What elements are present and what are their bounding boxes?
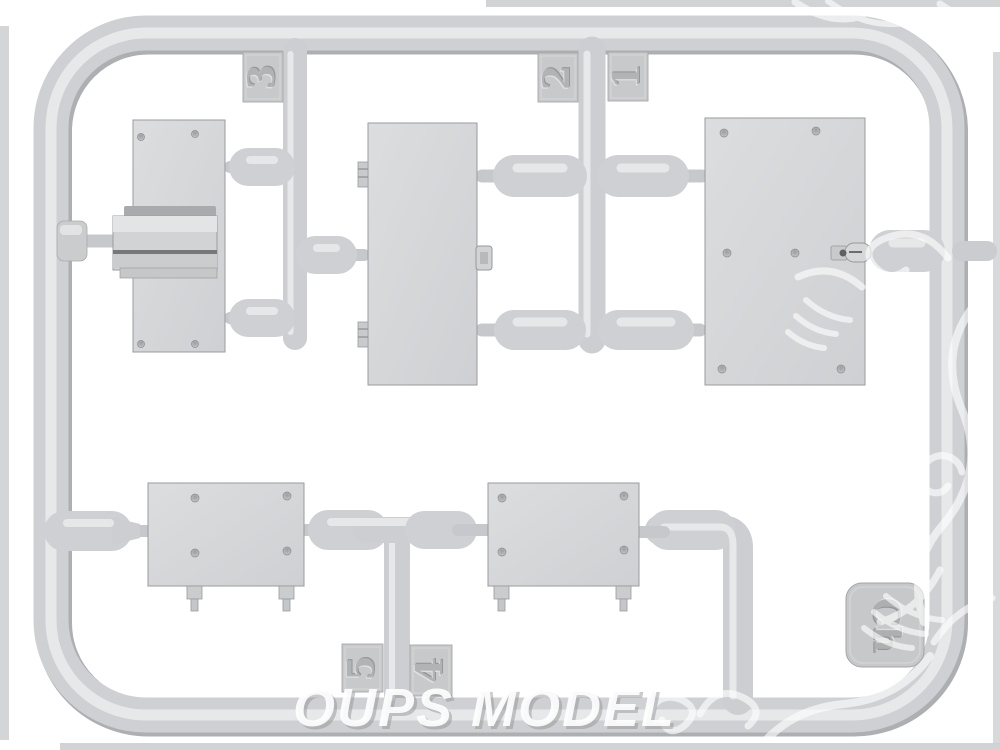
bottom-left-pin [279,586,294,599]
bottom-left-hole [191,494,199,502]
panel-handle-pin [840,250,847,257]
bottom-right-hole [620,492,628,500]
door-latch-notch [480,252,488,264]
part-left-panel [113,120,225,352]
part-bottom-right-box [488,483,639,611]
bottom-left-pin-tip [283,599,290,611]
bracket-lower-band [113,254,217,268]
right-panel-rivet [718,365,726,373]
part-tag-1: 1 1 1 [605,52,649,101]
photo-edge-left [0,26,9,740]
sprue-illustration: 3 3 3 2 2 2 1 1 1 [0,0,1000,750]
tag-number-1: 1 [606,64,648,89]
part-tag-3: 3 3 3 [240,52,284,102]
right-panel-rivet [791,249,799,257]
photo-edge-right [993,52,1000,744]
right-panel-rivet [812,127,820,135]
bottom-right-pin-tip [620,599,627,611]
part-right-panel [705,118,871,385]
tag-number-3: 3 [241,64,283,89]
bottom-left-pin [187,586,202,599]
watermark-text: OUPS MODEL OUPS MODEL [293,678,679,741]
bottom-left-pin-tip [191,599,198,611]
sprue-photo: 3 3 3 2 2 2 1 1 1 [0,0,1000,750]
photo-edge-top [486,0,1000,7]
watermark-text-main: OUPS MODEL [293,678,676,738]
runner-elbow-highlight [664,527,733,696]
bottom-left-hole [283,492,291,500]
arm-bottom-left-cone [112,517,140,545]
bracket-top-band [113,216,217,232]
tag-number-2: 2 [536,65,578,90]
door-hinge-bottom [358,322,368,347]
part-center-door [358,123,492,385]
bottom-right-pin [616,586,631,599]
center-door-plate [368,123,477,385]
bottom-left-hole [283,547,291,555]
bottom-right-plate [488,483,639,586]
bottom-right-pin-tip [498,599,505,611]
door-hinge-top [358,162,368,187]
right-panel-rivet [723,249,731,257]
photo-edge-bottom [60,743,1000,750]
left-rail-bulge-highlight [60,225,82,235]
left-panel-rivet [192,131,199,138]
part-tag-2: 2 2 2 [535,53,579,102]
bottom-right-hole [620,546,628,554]
bottom-right-hole [498,494,506,502]
bracket-ledge [120,268,217,278]
left-panel-rivet [138,134,145,141]
bottom-right-pin [494,586,509,599]
left-panel-rivet [138,341,145,348]
runner-elbow [660,530,738,700]
bracket-groove [113,250,217,254]
tag-number-5: 5 [341,655,383,680]
right-panel-rivet [837,365,845,373]
part-bottom-left-box [148,483,304,611]
right-panel-rivet [720,129,728,137]
left-panel-rivet [192,341,199,348]
bottom-left-hole [191,549,199,557]
bottom-left-plate [148,483,304,586]
bottom-right-hole [498,548,506,556]
